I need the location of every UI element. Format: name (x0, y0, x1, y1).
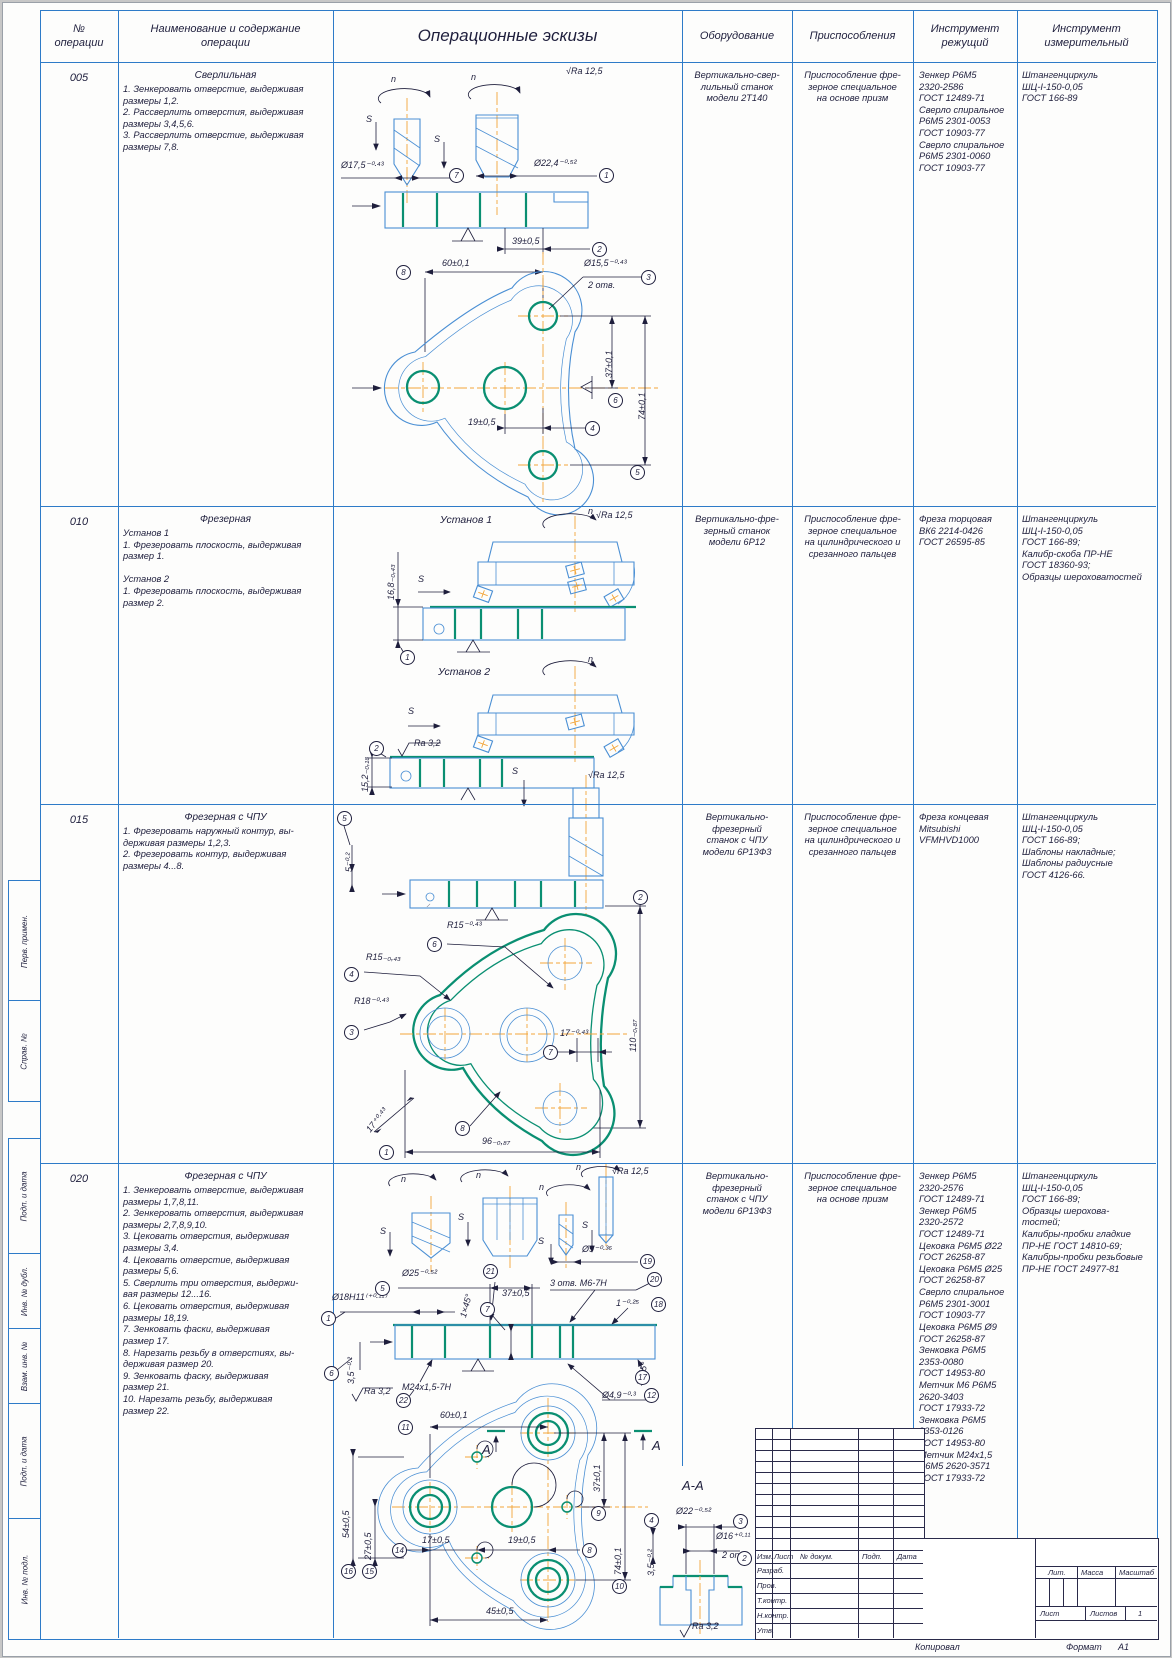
sketch-annotation: Ø25⁻⁰·⁵² (402, 1268, 437, 1279)
margin-stamp-box: Инв. № подл. (8, 1518, 41, 1640)
header-fixtures: Приспособления (792, 10, 913, 62)
op-measuring-tools: Штангенциркуль ШЦ-I-150-0,05 ГОСТ 166-89… (1022, 514, 1154, 584)
sketch-annotation: Ø22,4⁻⁰·⁵² (534, 158, 577, 169)
stamp-lit-label: Лит. (1048, 1568, 1066, 1577)
header-cutting-tool: Инструмент режущий (913, 10, 1017, 62)
sketch-annotation: S (408, 706, 414, 716)
stamp-rev-col-izm: Изм. (757, 1552, 773, 1561)
op-cutting-tools: Зенкер Р6М5 2320-2586 ГОСТ 12489-71 Свер… (919, 70, 1015, 174)
sketch-annotation: 27±0,5 (363, 1533, 373, 1560)
sketch-annotation: √Ra 12,5 (596, 510, 632, 520)
op-number: 020 (40, 1173, 118, 1185)
sketch-annotation: 1⁻⁰·²⁵ (616, 1298, 639, 1309)
op-cutting-tools: Фреза торцовая ВК6 2214-0426 ГОСТ 26595-… (919, 514, 1015, 549)
dimension-balloon: 1 (321, 1311, 336, 1326)
dimension-balloon: 16 (341, 1564, 356, 1579)
dimension-balloon: 5 (337, 811, 352, 826)
sketch-annotation: S (434, 134, 440, 144)
sketch-annotation: n (401, 1174, 406, 1184)
dimension-balloon: 8 (582, 1543, 597, 1558)
op-fixture: Приспособление фре- зерное специальное н… (794, 514, 911, 560)
margin-stamp-box: Перв. примен. (8, 880, 41, 1002)
op-fixture: Приспособление фре- зерное специальное н… (794, 70, 911, 105)
process-chart-page: .lb{stroke:#4a8fd4;stroke-width:1.1;fill… (0, 0, 1172, 1658)
dimension-balloon: 21 (483, 1264, 498, 1279)
header-equipment: Оборудование (682, 10, 792, 62)
grid-line (40, 804, 1156, 805)
sketch-annotation: 3,5⁻⁰·² (346, 1357, 357, 1384)
sketch-annotation: 2 отв. (588, 280, 615, 290)
grid-line (40, 1163, 1156, 1164)
sketch-annotation: 16,8₋₀,₄₃ (386, 564, 397, 600)
sketch-annotation: А (652, 1438, 661, 1453)
dimension-balloon: 5 (630, 465, 645, 480)
stamp-sheets-value: 1 (1138, 1609, 1142, 1618)
stamp-sig-approver: Утв. (757, 1626, 774, 1635)
op-equipment: Вертикально-фре- зерный станок модели 6Р… (684, 514, 790, 549)
sketch-annotation: n (576, 1162, 581, 1172)
op-steps: 1. Фрезеровать наружный контур, вы- держ… (123, 826, 331, 872)
sketch-annotation: 19±0,5 (508, 1535, 535, 1545)
sketch-annotation: 3 отв. М6-7Н (550, 1278, 607, 1288)
sketch-annotation: √Ra 12,5 (612, 1166, 648, 1176)
op-title: Фрезерная с ЧПУ (118, 1171, 333, 1182)
dimension-balloon: 20 (647, 1272, 662, 1287)
sketch-annotation: S (458, 1212, 464, 1222)
dimension-balloon: 9 (591, 1506, 606, 1521)
sketch-annotation: 60±0,1 (442, 258, 469, 268)
header-op-num: № операции (40, 10, 118, 62)
op-fixture: Приспособление фре- зерное специальное н… (794, 1171, 911, 1206)
header-op-name: Наименование и содержание операции (118, 10, 333, 62)
sketch-annotation: √Ra 12,5 (588, 770, 624, 780)
sketch-annotation: 74±0,1 (613, 1548, 623, 1575)
stamp-sig-tcontrol: Т.контр. (757, 1596, 787, 1605)
stamp-rev-col-sign: Подп. (862, 1552, 882, 1561)
margin-stamp-label: Справ. № (20, 1033, 29, 1069)
sketch-annotation: Ra 3,2 (692, 1621, 719, 1631)
dimension-balloon: 11 (398, 1420, 413, 1435)
margin-stamp-label: Инв. № дубл. (20, 1267, 29, 1316)
op-steps: 1. Зенкеровать отверстие, выдерживая раз… (123, 1185, 331, 1417)
dimension-balloon: 7 (543, 1045, 558, 1060)
margin-stamp-label: Инв. № подл. (20, 1554, 29, 1604)
dimension-balloon: 1 (379, 1145, 394, 1160)
sketch-annotation: S (582, 1220, 588, 1230)
op-steps: Установ 1 1. Фрезеровать плоскость, выде… (123, 528, 331, 609)
stamp-sig-developer: Разраб. (757, 1566, 784, 1575)
dimension-balloon: 19 (640, 1254, 655, 1269)
sketch-annotation: 45±0,5 (486, 1606, 513, 1616)
sketch-annotation: R15⁻⁰·⁴³ (447, 920, 482, 931)
op-number: 005 (40, 72, 118, 84)
op-cutting-tools: Фреза концевая Mitsubishi VFMHVD1000 (919, 812, 1015, 847)
sketch-annotation: R18⁻⁰·⁴³ (354, 996, 389, 1007)
op-steps: 1. Зенкеровать отверстие, выдерживая раз… (123, 84, 331, 154)
margin-stamp-box: Справ. № (8, 1000, 41, 1102)
stamp-sig-checker: Пров. (757, 1581, 777, 1590)
dimension-balloon: 2 (369, 741, 384, 756)
sketch-annotation: S (366, 114, 372, 124)
sketch-annotation: n (471, 72, 476, 82)
dimension-balloon: 6 (608, 393, 623, 408)
stamp-sig-ncontrol: Н.контр. (757, 1611, 789, 1620)
grid-line (792, 10, 793, 1428)
sketch-annotation: 17⁻⁰·⁴³ (560, 1028, 588, 1039)
op-equipment: Вертикально-свер- лильный станок модели … (684, 70, 790, 105)
dimension-balloon: 17 (635, 1370, 650, 1385)
grid-line (682, 10, 683, 1466)
sketch-annotation: 39±0,5 (512, 236, 539, 246)
dimension-balloon: 3 (344, 1025, 359, 1040)
grid-line (913, 10, 914, 1538)
sketch-annotation: n (476, 1170, 481, 1180)
op-equipment: Вертикально- фрезерный станок с ЧПУ моде… (684, 1171, 790, 1217)
footer-copied: Копировал (915, 1642, 960, 1652)
dimension-balloon: 1 (599, 168, 614, 183)
dimension-balloon: 3 (733, 1514, 748, 1529)
margin-stamp-label: Перв. примен. (20, 914, 29, 967)
op-title: Сверлильная (118, 70, 333, 81)
dimension-balloon: 12 (644, 1388, 659, 1403)
sketch-annotation: Ra 3,2 (364, 1386, 391, 1396)
footer-format-value: А1 (1118, 1642, 1129, 1652)
grid-line (1017, 10, 1018, 1538)
margin-stamp-box: Инв. № дубл. (8, 1253, 41, 1330)
dimension-balloon: 2 (737, 1551, 752, 1566)
margin-stamp-box: Подп. и дата (8, 1138, 41, 1255)
dimension-balloon: 10 (612, 1579, 627, 1594)
dimension-balloon: 6 (427, 937, 442, 952)
dimension-balloon: 3 (641, 270, 656, 285)
sketch-annotation: Ø17,5⁻⁰·⁴³ (341, 160, 384, 171)
sketch-annotation: 19±0,5 (468, 417, 495, 427)
sketch-annotation: 60±0,1 (440, 1410, 467, 1420)
dimension-balloon: 7 (449, 168, 464, 183)
margin-stamp-label: Взам. инв. № (20, 1342, 29, 1391)
sketch-annotation: S (418, 574, 424, 584)
op-cutting-tools: Зенкер Р6М5 2320-2576 ГОСТ 12489-71 Зенк… (919, 1171, 1015, 1484)
sketch-annotation: 74±0,1 (637, 393, 647, 420)
op-title: Фрезерная с ЧПУ (118, 812, 333, 823)
sketch-annotation: 3,5⁻⁰·² (646, 1549, 657, 1576)
sketch-annotation: М24х1,5-7Н (402, 1382, 451, 1392)
op-measuring-tools: Штангенциркуль ШЦ-I-150-0,05 ГОСТ 166-89… (1022, 812, 1154, 882)
dimension-balloon: 15 (362, 1564, 377, 1579)
margin-stamp-label: Подп. и дата (20, 1436, 29, 1486)
margin-stamp-box: Подп. и дата (8, 1403, 41, 1520)
dimension-balloon: 2 (633, 890, 648, 905)
grid-line (118, 10, 119, 1638)
op-fixture: Приспособление фре- зерное специальное н… (794, 812, 911, 858)
op-number: 010 (40, 516, 118, 528)
dimension-balloon: 4 (344, 967, 359, 982)
header-sketches: Операционные эскизы (333, 10, 682, 62)
dimension-balloon: 6 (324, 1366, 339, 1381)
op-measuring-tools: Штангенциркуль ШЦ-I-150-0,05 ГОСТ 166-89 (1022, 70, 1154, 105)
dimension-balloon: 4 (644, 1513, 659, 1528)
stamp-rev-col-list: Лист (774, 1552, 793, 1561)
sketch-annotation: 37±0,1 (604, 351, 614, 378)
dimension-balloon: 8 (455, 1121, 470, 1136)
header-measuring-tool: Инструмент измерительный (1017, 10, 1156, 62)
sketch-annotation: 17±0,5 (422, 1535, 449, 1545)
sketch-annotation: n (391, 74, 396, 84)
sketch-annotation: А-А (682, 1478, 704, 1493)
dimension-balloon: 14 (392, 1543, 407, 1558)
sketch-annotation: 110₋₀,₈₇ (628, 1020, 639, 1052)
stamp-mass-label: Масса (1081, 1568, 1103, 1577)
grid-line (40, 506, 1156, 507)
op-measuring-tools: Штангенциркуль ШЦ-I-150-0,05 ГОСТ 166-89… (1022, 1171, 1154, 1275)
sketch-annotation: Ø16⁺⁰·¹¹ (716, 1531, 750, 1542)
sketch-annotation: 5⁻⁰·² (344, 853, 355, 872)
sketch-annotation: 37±0,5 (502, 1288, 529, 1298)
sketch-annotation: Ø9⁻⁰·³⁶ (582, 1244, 612, 1255)
sketch-annotation: S (512, 766, 518, 776)
revision-table (755, 1428, 925, 1540)
dimension-balloon: 5 (375, 1281, 390, 1296)
margin-stamp-label: Подп. и дата (20, 1171, 29, 1221)
margin-stamp-box: Взам. инв. № (8, 1328, 41, 1405)
sketch-annotation: 54±0,5 (341, 1511, 351, 1538)
sketch-annotation: 37±0,1 (592, 1465, 602, 1492)
dimension-balloon: 1 (400, 650, 415, 665)
dimension-balloon: 8 (396, 265, 411, 280)
sketch-annotation: n (588, 654, 593, 664)
sketch-annotation: 96₋₀,₈₇ (482, 1136, 510, 1147)
grid-line (333, 10, 334, 1638)
dimension-balloon: 22 (396, 1393, 411, 1408)
op-equipment: Вертикально- фрезерный станок с ЧПУ моде… (684, 812, 790, 858)
sketch-annotation: n (539, 1182, 544, 1192)
op-title: Фрезерная (118, 514, 333, 525)
stamp-sheets-label: Листов (1090, 1609, 1117, 1618)
stamp-sheet-label: Лист (1040, 1609, 1059, 1618)
stamp-rev-col-doc: № докум. (800, 1552, 833, 1561)
sketch-annotation: √Ra 12,5 (566, 66, 602, 76)
sketch-annotation: Ra 3,2 (414, 738, 441, 748)
sketch-annotation: S (380, 1226, 386, 1236)
sketch-annotation: А (482, 1442, 491, 1457)
op-number: 015 (40, 814, 118, 826)
dimension-balloon: 2 (592, 242, 607, 257)
dimension-balloon: 4 (585, 421, 600, 436)
dimension-balloon: 18 (651, 1297, 666, 1312)
dimension-balloon: 7 (480, 1302, 495, 1317)
grid-line (40, 62, 1156, 63)
sketch-annotation: Установ 2 (438, 666, 490, 678)
sketch-annotation: R15₋₀,₄₃ (366, 952, 401, 963)
stamp-scale-label: Масштаб (1119, 1568, 1154, 1577)
sketch-annotation: Ø15,5⁻⁰·⁴³ (584, 258, 627, 269)
sketch-annotation: 15,2₋₀,₁₈ (360, 757, 371, 792)
footer-format-label: Формат (1066, 1642, 1102, 1652)
sketch-annotation: n (588, 506, 593, 516)
sketch-annotation: Ø4,9⁻⁰·³ (602, 1390, 636, 1401)
stamp-rev-col-date: Дата (897, 1552, 917, 1561)
sketch-annotation: Ø22⁻⁰·⁵² (676, 1506, 711, 1517)
sketch-annotation: S (538, 1236, 544, 1246)
sketch-annotation: Установ 1 (440, 514, 492, 526)
